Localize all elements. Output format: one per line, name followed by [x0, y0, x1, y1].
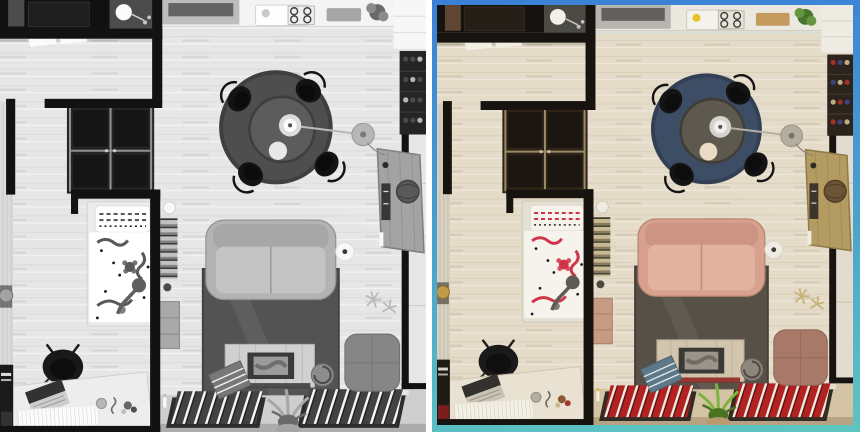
comparison-stage — [0, 0, 860, 432]
panel-color-after — [432, 0, 860, 432]
grayscale-render-image — [0, 0, 426, 432]
panel-grayscale-before — [0, 0, 426, 432]
color-render-image — [437, 5, 853, 425]
